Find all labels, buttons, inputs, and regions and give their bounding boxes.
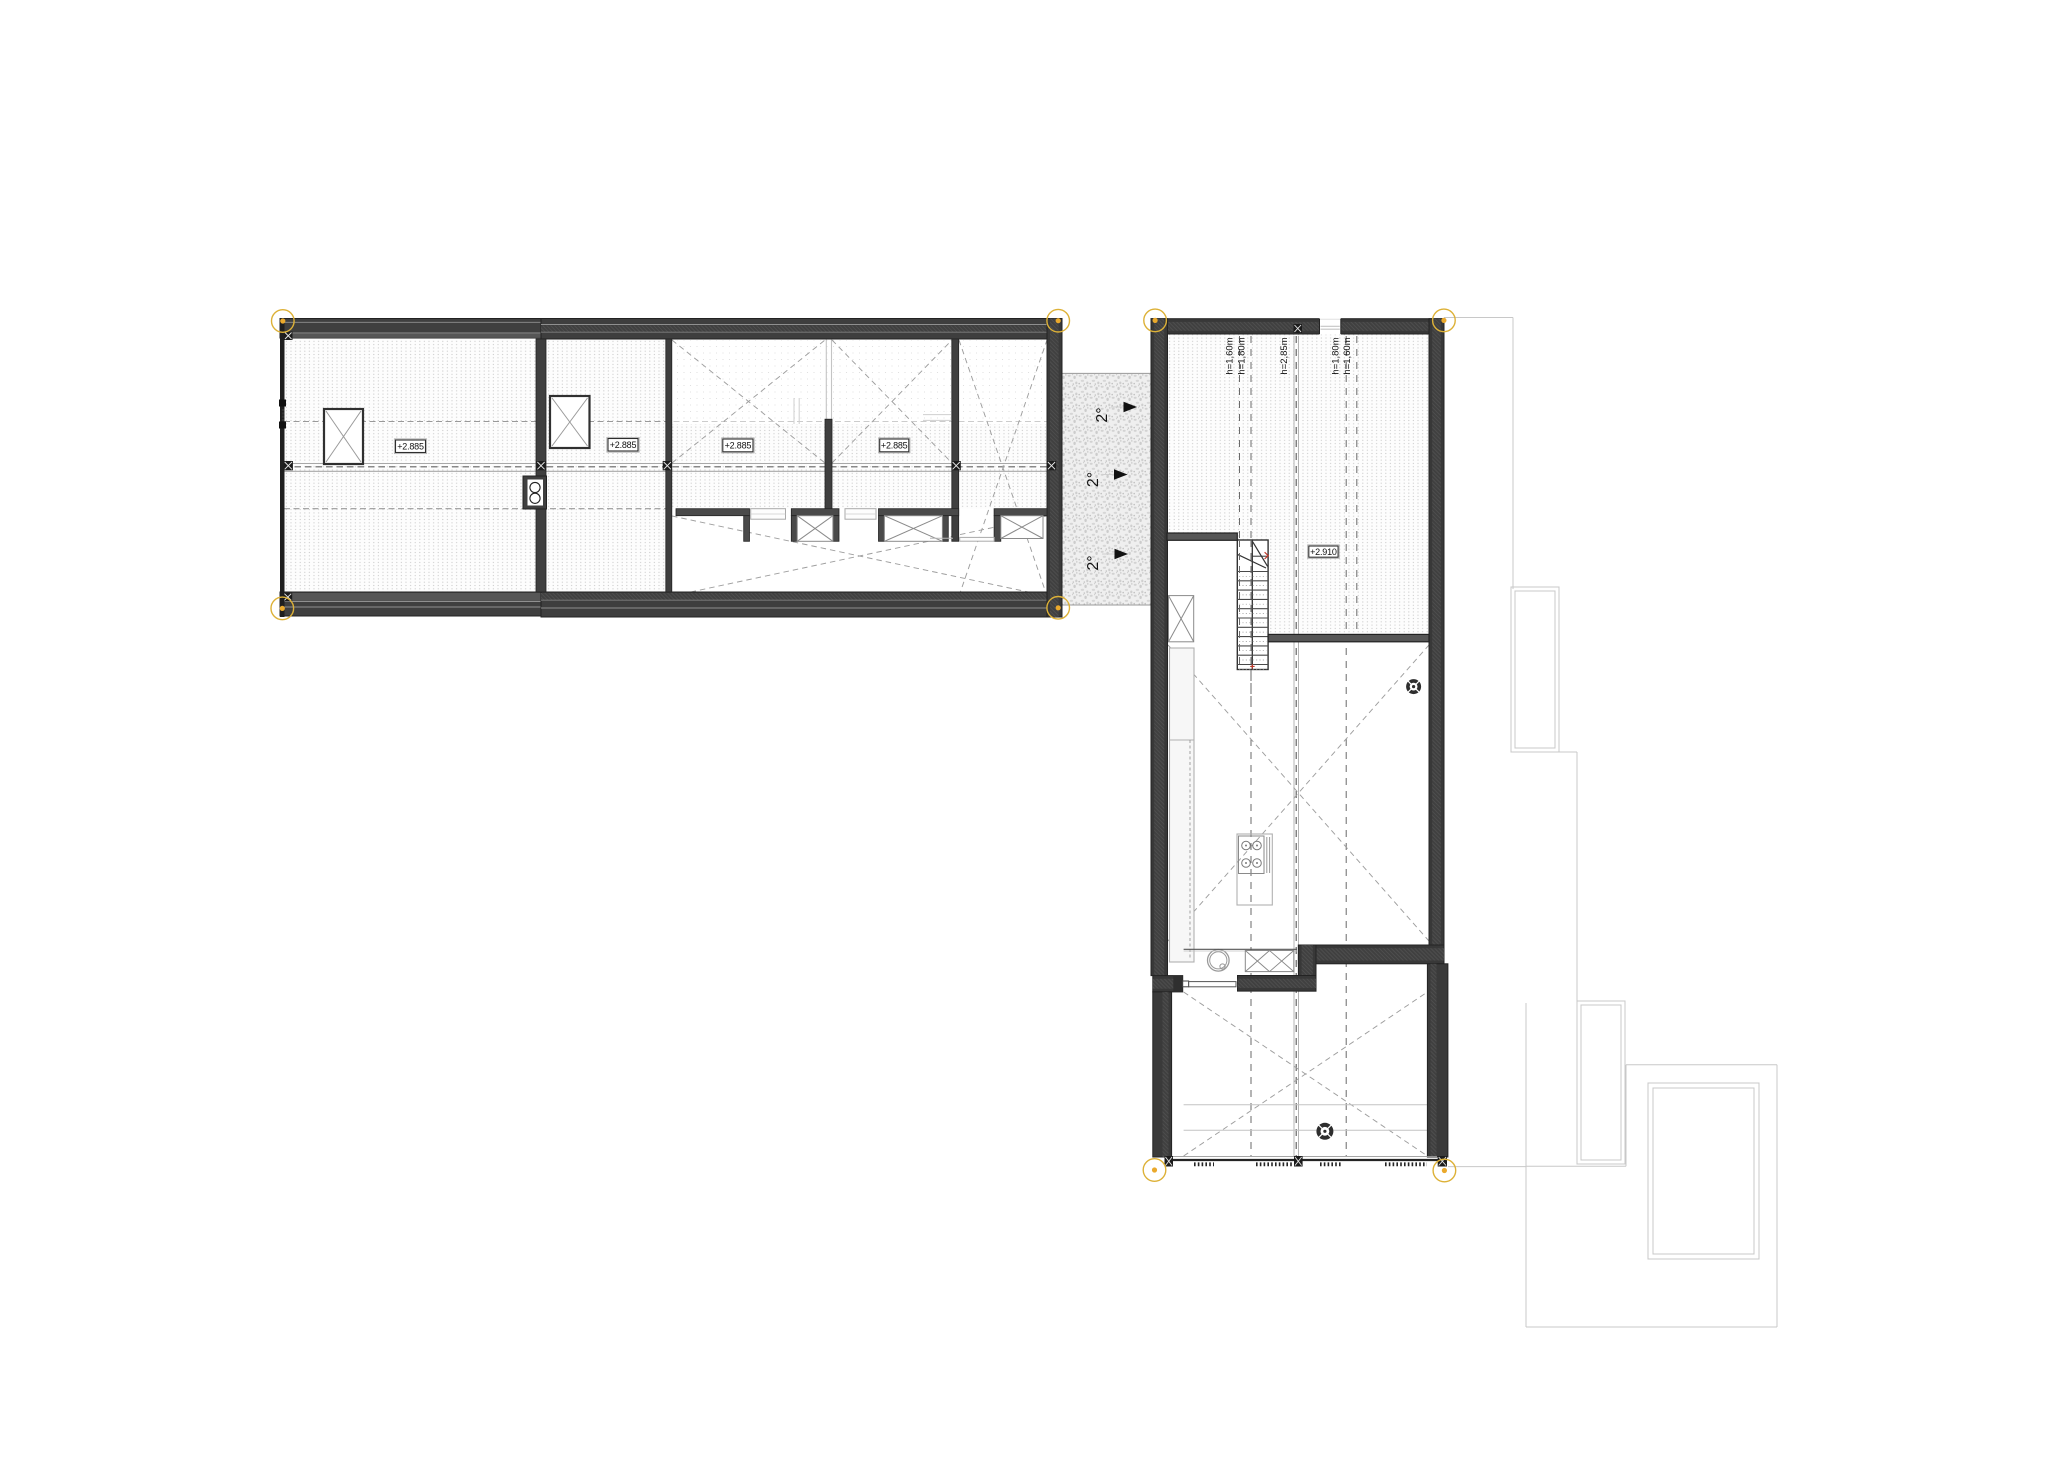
svg-text:+2.885: +2.885 xyxy=(397,441,424,451)
svg-text:h=2,85m: h=2,85m xyxy=(1279,337,1290,374)
svg-text:+2.885: +2.885 xyxy=(610,440,637,450)
svg-text:h=1,80m: h=1,80m xyxy=(1331,337,1342,374)
svg-text:h=1,80m: h=1,80m xyxy=(1237,337,1248,374)
svg-text:2°: 2° xyxy=(1085,555,1102,570)
svg-text:+2.885: +2.885 xyxy=(725,441,752,451)
svg-text:+2.885: +2.885 xyxy=(881,441,908,451)
svg-text:2°: 2° xyxy=(1094,407,1111,422)
svg-text:+2.910: +2.910 xyxy=(1310,547,1337,557)
svg-text:2°: 2° xyxy=(1085,472,1102,487)
svg-text:h=1,60m: h=1,60m xyxy=(1225,337,1236,374)
svg-text:h=1,60m: h=1,60m xyxy=(1342,337,1353,374)
